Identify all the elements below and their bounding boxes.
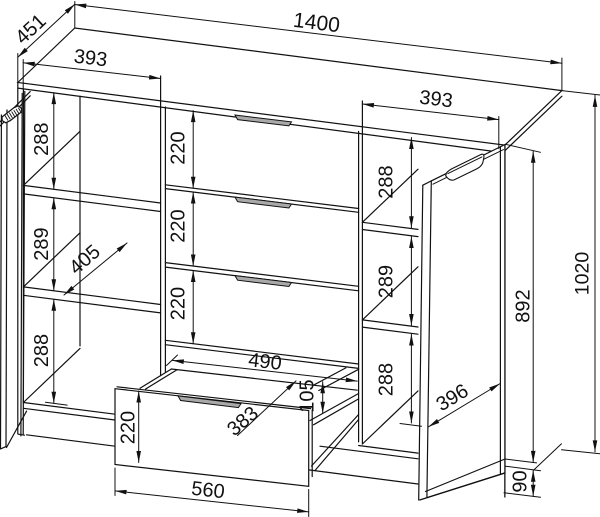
svg-text:393: 393 [418, 87, 454, 113]
svg-text:288: 288 [376, 363, 398, 396]
svg-text:451: 451 [11, 10, 50, 49]
svg-text:289: 289 [31, 227, 53, 260]
svg-text:393: 393 [73, 46, 109, 72]
svg-text:405: 405 [65, 241, 105, 279]
svg-text:1020: 1020 [571, 252, 593, 296]
svg-text:90: 90 [510, 470, 532, 492]
svg-text:220: 220 [168, 209, 190, 242]
svg-text:105: 105 [297, 379, 319, 412]
svg-text:289: 289 [376, 265, 398, 298]
svg-text:288: 288 [31, 123, 53, 156]
svg-text:288: 288 [376, 165, 398, 198]
svg-text:490: 490 [247, 349, 283, 375]
svg-text:220: 220 [168, 131, 190, 164]
svg-text:220: 220 [168, 287, 190, 320]
svg-text:892: 892 [513, 289, 535, 322]
svg-text:1400: 1400 [292, 9, 341, 37]
svg-text:560: 560 [190, 478, 226, 503]
svg-text:220: 220 [118, 411, 140, 444]
svg-text:288: 288 [31, 334, 53, 367]
